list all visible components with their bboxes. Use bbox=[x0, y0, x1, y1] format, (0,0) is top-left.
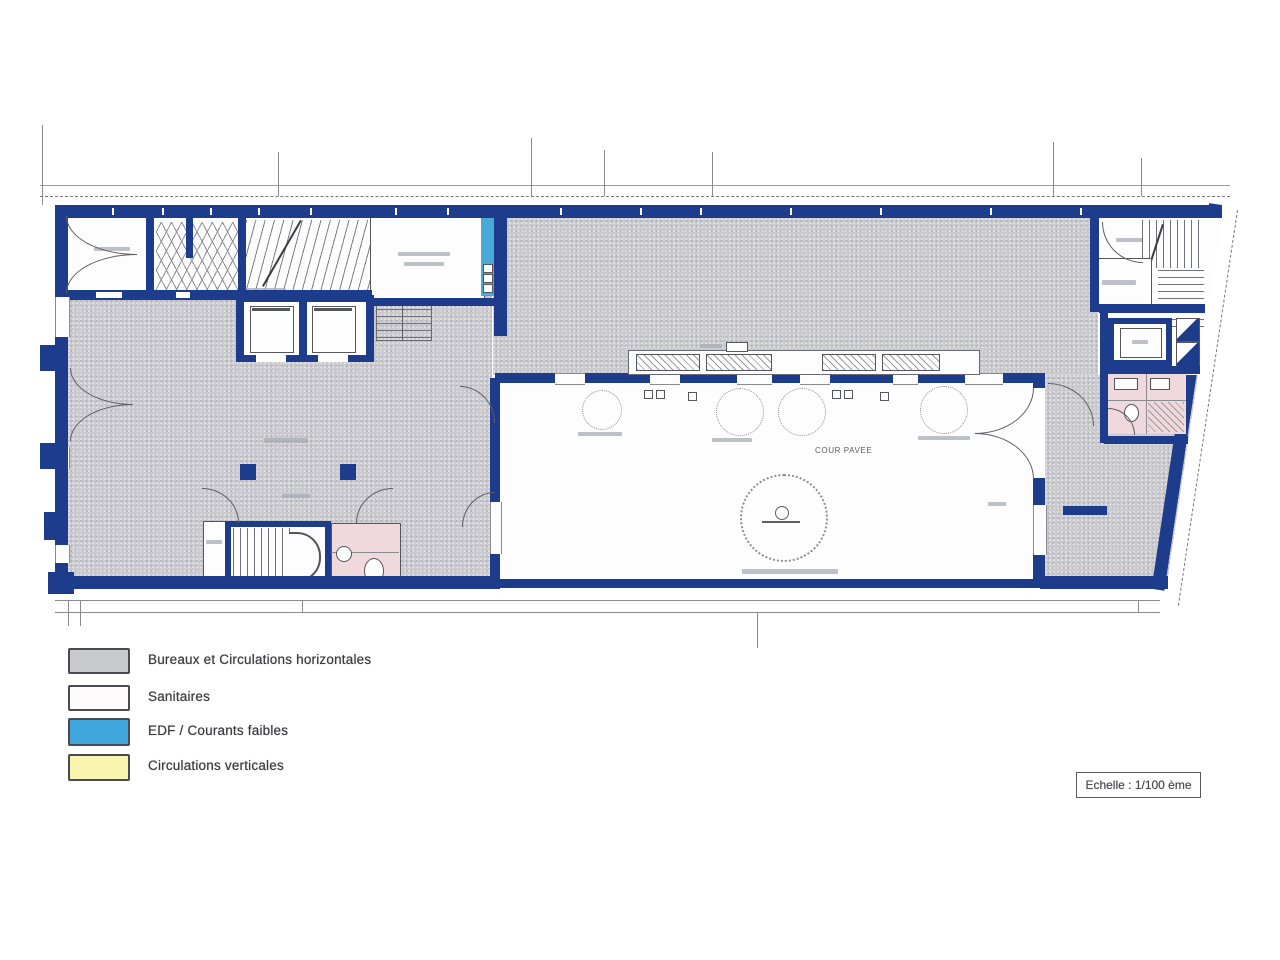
elevator-car bbox=[250, 306, 294, 353]
elevator-door-line bbox=[314, 308, 352, 311]
planter bbox=[706, 354, 772, 371]
scale-box: Echelle : 1/100 ème bbox=[1076, 772, 1201, 798]
boundary-tick bbox=[42, 125, 43, 205]
planter bbox=[636, 354, 700, 371]
legend-swatch-offices bbox=[68, 648, 130, 674]
sanitary-grid-line bbox=[1108, 400, 1186, 401]
scale-label: Echelle : 1/100 ème bbox=[1085, 778, 1191, 792]
window-slit bbox=[447, 208, 449, 215]
small-stair bbox=[376, 302, 432, 341]
right-block-wall bbox=[1100, 313, 1108, 443]
window-slit bbox=[162, 208, 164, 215]
tree-label-illegible bbox=[578, 432, 622, 436]
window-slit bbox=[258, 208, 260, 215]
corridor-wall bbox=[494, 218, 507, 336]
boundary-tick bbox=[604, 150, 605, 196]
planter bbox=[882, 354, 940, 371]
duct-shaft bbox=[1176, 318, 1200, 342]
ramp-hatching bbox=[156, 222, 238, 290]
potted-plant-icon bbox=[832, 390, 841, 399]
elevator-divider-wall bbox=[299, 302, 307, 355]
window-slit bbox=[1080, 208, 1082, 215]
wall-stub-detail bbox=[726, 342, 748, 352]
legend-swatch-edf bbox=[68, 718, 130, 746]
legend-label-vertical: Circulations verticales bbox=[148, 758, 284, 773]
courtyard-east-wall bbox=[1033, 555, 1045, 588]
duct-shaft bbox=[1176, 342, 1200, 367]
hall-partition-wall bbox=[238, 218, 246, 295]
utility-room bbox=[370, 216, 485, 303]
courtyard-north-wall bbox=[495, 373, 555, 383]
elevator-label-illegible bbox=[1132, 340, 1148, 344]
window-slit bbox=[395, 208, 397, 215]
window-slit bbox=[310, 208, 312, 215]
boundary-tick bbox=[1053, 142, 1054, 196]
potted-plant-icon bbox=[880, 392, 889, 401]
legend-swatch-sanitary bbox=[68, 685, 130, 711]
west-pilaster bbox=[40, 443, 68, 469]
tree-trunk-base bbox=[762, 521, 800, 523]
courtyard-east-window bbox=[1033, 505, 1047, 555]
courtyard-label: COUR PAVEE bbox=[815, 446, 872, 455]
west-window bbox=[55, 297, 70, 337]
boundary-tick bbox=[712, 152, 713, 196]
wall-stub bbox=[1063, 506, 1107, 515]
courtyard-east-wall bbox=[1033, 375, 1045, 388]
potted-plant-icon bbox=[688, 392, 697, 401]
elevator-car bbox=[312, 306, 356, 353]
property-line-solid bbox=[40, 185, 1230, 186]
fence-label-illegible bbox=[742, 569, 838, 574]
hall-partition-wall bbox=[146, 218, 154, 295]
window-slit bbox=[640, 208, 642, 215]
south-wall-left bbox=[55, 576, 500, 589]
legend-label-sanitary: Sanitaires bbox=[148, 689, 210, 704]
room-label-illegible bbox=[282, 494, 310, 498]
legend-label-edf: EDF / Courants faibles bbox=[148, 723, 288, 738]
sink-icon bbox=[1150, 378, 1170, 390]
north-facade-wall bbox=[55, 205, 1222, 218]
floor-plan: COUR PAVEE bbox=[0, 0, 1280, 960]
utility-room-bottom-wall bbox=[370, 298, 494, 306]
tree-icon bbox=[582, 390, 622, 430]
sanitary-hatch bbox=[1148, 402, 1184, 432]
tree-icon bbox=[778, 388, 826, 436]
boundary-tick bbox=[278, 152, 279, 196]
column bbox=[340, 464, 356, 480]
potted-plant-icon bbox=[644, 390, 653, 399]
sidewalk-tick bbox=[68, 600, 69, 626]
room-label-illegible bbox=[404, 262, 444, 266]
dimension-label-illegible bbox=[988, 502, 1006, 506]
right-block-wall bbox=[1104, 436, 1188, 444]
sidewalk-line bbox=[55, 600, 1160, 601]
sink-icon bbox=[1114, 378, 1138, 390]
sidewalk-tick bbox=[1138, 600, 1139, 613]
door-gap bbox=[176, 292, 190, 298]
window-slit bbox=[700, 208, 702, 215]
west-pilaster bbox=[44, 512, 68, 540]
area-label-illegible bbox=[264, 438, 308, 443]
window-slit bbox=[112, 208, 114, 215]
edf-equipment bbox=[483, 274, 493, 283]
window-slit bbox=[560, 208, 562, 215]
window-slit bbox=[790, 208, 792, 215]
u-stair-treads bbox=[233, 528, 293, 582]
west-window bbox=[55, 545, 70, 563]
tree-icon bbox=[920, 386, 968, 434]
room-label-illegible bbox=[206, 540, 222, 544]
courtyard-window bbox=[555, 373, 585, 385]
column bbox=[240, 464, 256, 480]
potted-plant-icon bbox=[656, 390, 665, 399]
sanitary-grid-line bbox=[1146, 374, 1147, 434]
legend-swatch-vertical bbox=[68, 754, 130, 781]
tree-icon bbox=[716, 388, 764, 436]
room-label-illegible bbox=[398, 252, 450, 256]
boundary-tick bbox=[531, 138, 532, 196]
tree-label-illegible bbox=[712, 438, 752, 442]
south-wall-right bbox=[1040, 576, 1168, 589]
tree-label-illegible bbox=[918, 436, 970, 440]
hall-partition-wall bbox=[186, 218, 193, 258]
boundary-tick bbox=[1141, 158, 1142, 196]
sink-icon bbox=[336, 546, 352, 562]
scanned-floor-plan-page: COUR PAVEE Bureaux et Circulations horiz… bbox=[0, 0, 1280, 960]
elevator-door-gap bbox=[318, 355, 348, 362]
potted-plant-icon bbox=[844, 390, 853, 399]
sidewalk-tick bbox=[757, 612, 758, 648]
planter bbox=[822, 354, 876, 371]
edf-equipment bbox=[483, 284, 493, 293]
edf-equipment bbox=[483, 264, 493, 273]
right-block-wall bbox=[1108, 366, 1200, 374]
west-pilaster bbox=[40, 345, 68, 371]
legend: Bureaux et Circulations horizontales San… bbox=[68, 648, 488, 788]
sidewalk-tick bbox=[80, 600, 81, 626]
sidewalk-tick bbox=[302, 600, 303, 613]
legend-label-offices: Bureaux et Circulations horizontales bbox=[148, 652, 371, 667]
right-block-wall bbox=[1090, 218, 1099, 312]
elevator-door-gap bbox=[256, 355, 286, 362]
property-line-dashed bbox=[40, 196, 1230, 197]
room-label-illegible bbox=[1102, 280, 1136, 285]
window-slit bbox=[880, 208, 882, 215]
courtyard-east-wall bbox=[1033, 478, 1045, 505]
stair-arrow-line bbox=[402, 302, 403, 340]
right-block-wall bbox=[1099, 304, 1205, 313]
dimension-label-illegible bbox=[700, 344, 722, 348]
sidewalk-line bbox=[55, 612, 1160, 613]
courtyard-south-wall bbox=[497, 579, 1040, 588]
tree-trunk-icon bbox=[775, 506, 789, 520]
elevator-door-line bbox=[252, 308, 290, 311]
window-slit bbox=[990, 208, 992, 215]
window-slit bbox=[210, 208, 212, 215]
